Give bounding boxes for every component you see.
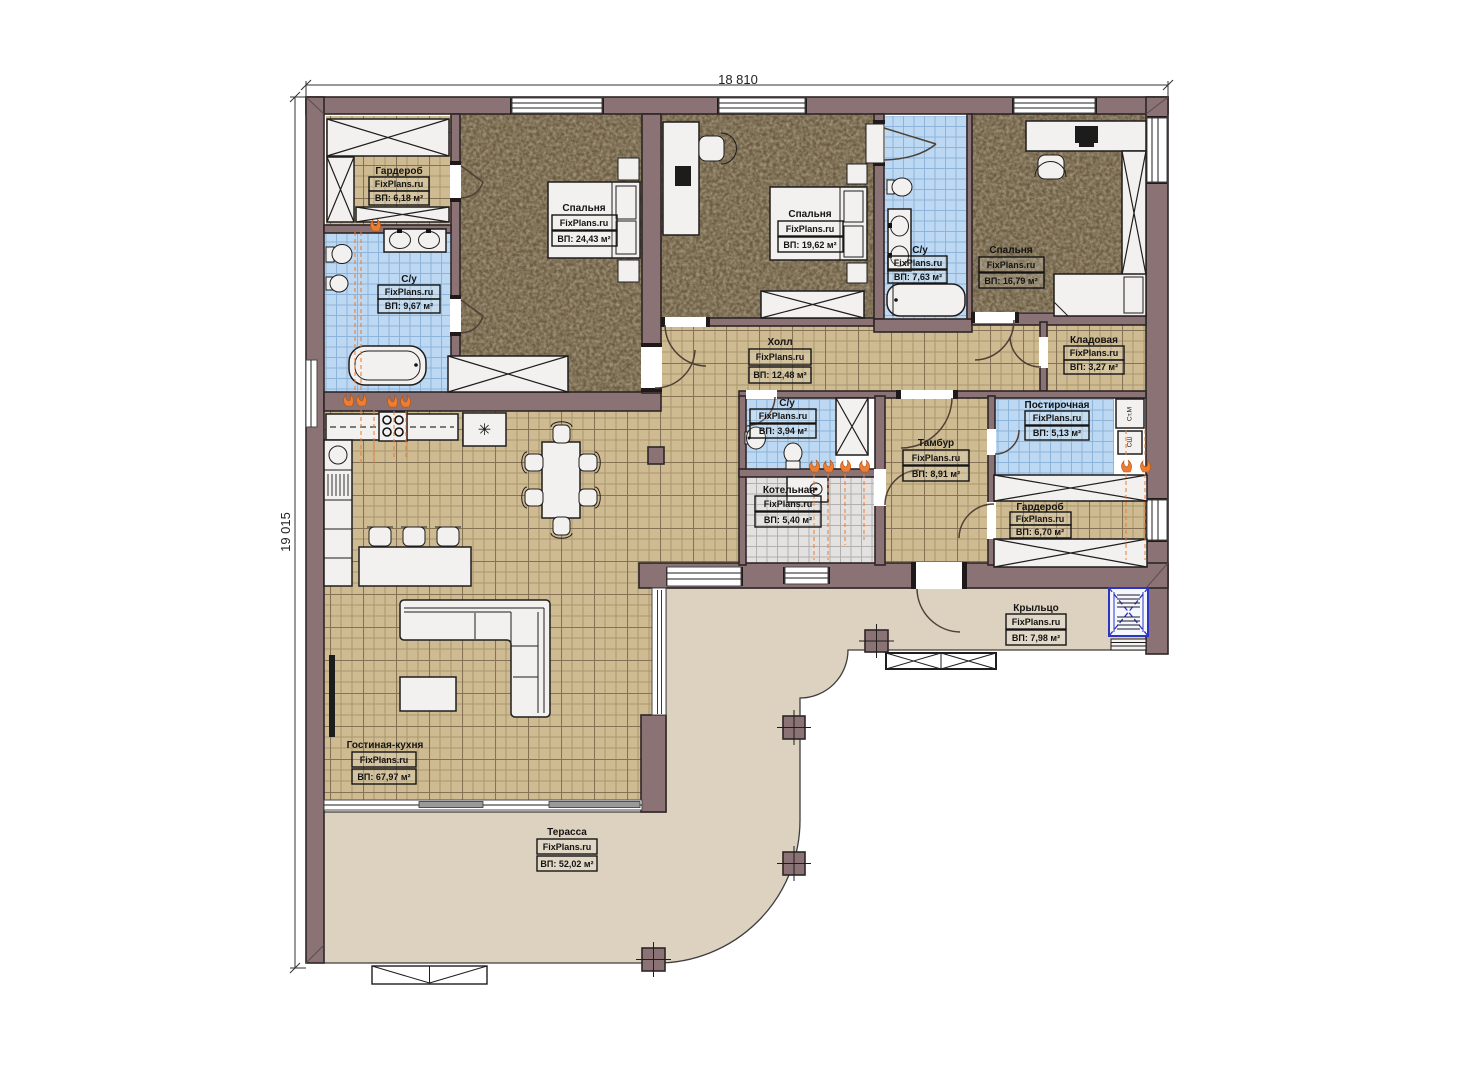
svg-text:FixPlans.ru: FixPlans.ru xyxy=(543,842,592,852)
svg-text:Кладовая: Кладовая xyxy=(1070,335,1118,346)
svg-text:FixPlans.ru: FixPlans.ru xyxy=(360,755,409,765)
svg-text:ВП: 6,70 м²: ВП: 6,70 м² xyxy=(1016,527,1064,537)
svg-text:19 015: 19 015 xyxy=(278,512,293,552)
svg-text:ВП: 5,40 м²: ВП: 5,40 м² xyxy=(764,515,812,525)
svg-text:FixPlans.ru: FixPlans.ru xyxy=(756,352,805,362)
svg-text:Спальня: Спальня xyxy=(562,203,605,214)
svg-text:Холл: Холл xyxy=(767,337,792,348)
svg-text:FixPlans.ru: FixPlans.ru xyxy=(560,218,609,228)
svg-text:Терасса: Терасса xyxy=(547,827,587,838)
svg-text:Постирочная: Постирочная xyxy=(1025,400,1090,411)
svg-text:ВП: 52,02 м²: ВП: 52,02 м² xyxy=(540,859,593,869)
svg-text:ВП: 67,97 м²: ВП: 67,97 м² xyxy=(357,772,410,782)
svg-text:✳: ✳ xyxy=(478,422,491,439)
svg-text:FixPlans.ru: FixPlans.ru xyxy=(375,179,424,189)
svg-text:ВП: 7,63 м²: ВП: 7,63 м² xyxy=(894,272,942,282)
svg-text:ВП: 19,62 м²: ВП: 19,62 м² xyxy=(783,240,836,250)
svg-text:ВП: 8,91 м²: ВП: 8,91 м² xyxy=(912,469,960,479)
svg-text:Спальня: Спальня xyxy=(788,209,831,220)
svg-text:FixPlans.ru: FixPlans.ru xyxy=(1012,617,1061,627)
svg-text:Спальня: Спальня xyxy=(989,245,1032,256)
svg-text:FixPlans.ru: FixPlans.ru xyxy=(987,260,1036,270)
svg-text:FixPlans.ru: FixPlans.ru xyxy=(786,224,835,234)
svg-text:FixPlans.ru: FixPlans.ru xyxy=(912,453,961,463)
svg-text:Крыльцо: Крыльцо xyxy=(1013,603,1059,614)
svg-text:ВП: 16,79 м²: ВП: 16,79 м² xyxy=(984,276,1037,286)
svg-text:FixPlans.ru: FixPlans.ru xyxy=(764,499,813,509)
svg-text:FixPlans.ru: FixPlans.ru xyxy=(1033,413,1082,423)
svg-text:Гардероб: Гардероб xyxy=(1016,501,1063,513)
svg-text:ВП: 7,98 м²: ВП: 7,98 м² xyxy=(1012,633,1060,643)
svg-text:Гостиная-кухня: Гостиная-кухня xyxy=(347,740,424,751)
svg-text:Ст.М: Ст.М xyxy=(1127,407,1134,421)
svg-text:С/у: С/у xyxy=(912,245,928,256)
svg-text:FixPlans.ru: FixPlans.ru xyxy=(894,258,943,268)
svg-text:FixPlans.ru: FixPlans.ru xyxy=(759,411,808,421)
svg-text:FixPlans.ru: FixPlans.ru xyxy=(1070,348,1119,358)
svg-text:FixPlans.ru: FixPlans.ru xyxy=(385,287,434,297)
svg-text:СШ: СШ xyxy=(1127,437,1134,448)
svg-text:С/у: С/у xyxy=(401,274,417,285)
svg-text:Котельная: Котельная xyxy=(763,485,816,496)
svg-text:Гардероб: Гардероб xyxy=(375,165,422,177)
svg-text:FixPlans.ru: FixPlans.ru xyxy=(1016,514,1065,524)
svg-text:С/у: С/у xyxy=(779,398,795,409)
svg-text:ВП: 12,48 м²: ВП: 12,48 м² xyxy=(753,370,806,380)
svg-text:ВП: 9,67 м²: ВП: 9,67 м² xyxy=(385,301,433,311)
svg-text:ВП: 5,13 м²: ВП: 5,13 м² xyxy=(1033,428,1081,438)
svg-text:Тамбур: Тамбур xyxy=(918,437,954,449)
svg-text:18 810: 18 810 xyxy=(718,72,758,87)
svg-text:ВП: 3,27 м²: ВП: 3,27 м² xyxy=(1070,362,1118,372)
svg-text:ВП: 6,18 м²: ВП: 6,18 м² xyxy=(375,193,423,203)
svg-text:ВП: 24,43 м²: ВП: 24,43 м² xyxy=(557,234,610,244)
svg-text:ВП: 3,94 м²: ВП: 3,94 м² xyxy=(759,426,807,436)
